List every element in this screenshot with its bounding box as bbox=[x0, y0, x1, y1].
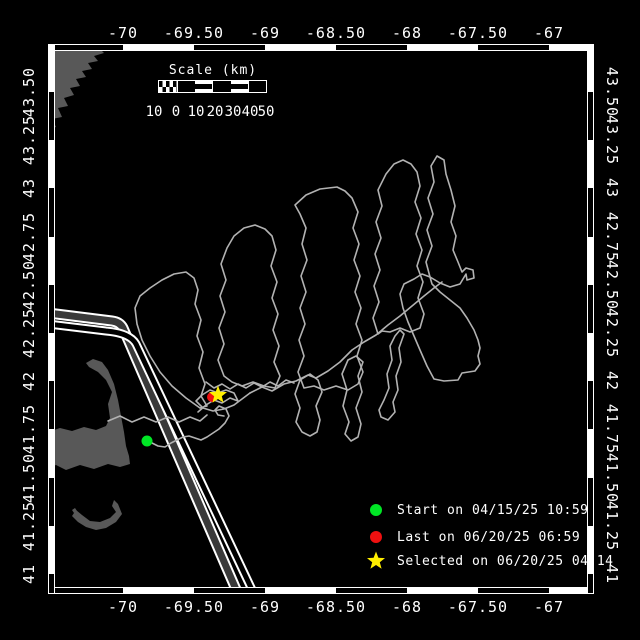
zebra-segment bbox=[49, 478, 54, 526]
glider-track bbox=[250, 282, 442, 393]
last-marker-icon bbox=[370, 531, 382, 543]
glider-track bbox=[295, 374, 322, 436]
zebra-segment bbox=[49, 381, 54, 429]
glider-track bbox=[426, 156, 474, 287]
scale-bar-segment bbox=[231, 81, 248, 92]
zebra-segment bbox=[478, 588, 549, 593]
scale-bar-checker-segment bbox=[159, 81, 177, 92]
lat-tick-label: 41 bbox=[20, 539, 38, 609]
zebra-segment bbox=[49, 188, 54, 237]
frame-border-bottom bbox=[48, 587, 594, 594]
glider-track bbox=[206, 380, 294, 389]
zebra-segment bbox=[588, 574, 593, 593]
zebra-segment bbox=[588, 92, 593, 140]
start-marker-icon bbox=[370, 504, 382, 516]
glider-track-map-page: -70-69.50-69-68.50-68-67.50-67 -70-69.50… bbox=[0, 0, 640, 640]
lon-tick-label: -67 bbox=[504, 598, 594, 616]
scale-tick-label: 10 bbox=[188, 104, 205, 120]
lon-tick-label: -67 bbox=[504, 24, 594, 42]
frame-border-top bbox=[48, 44, 594, 51]
scale-tick-label: 40 bbox=[242, 104, 259, 120]
zebra-segment bbox=[588, 478, 593, 526]
scale-tick-label: 50 bbox=[258, 104, 275, 120]
landmass bbox=[72, 500, 122, 530]
glider-track bbox=[218, 225, 280, 388]
zebra-segment bbox=[52, 588, 123, 593]
start-marker bbox=[142, 436, 153, 447]
zebra-segment bbox=[49, 574, 54, 593]
glider-track bbox=[400, 274, 480, 381]
legend-last-label: Last on 06/20/25 06:59 bbox=[397, 530, 580, 545]
zebra-segment bbox=[588, 285, 593, 333]
zebra-segment bbox=[336, 45, 407, 50]
zebra-segment bbox=[588, 188, 593, 237]
zebra-segment bbox=[49, 92, 54, 140]
zebra-segment bbox=[52, 45, 123, 50]
legend-item-start: Start on 04/15/25 10:59 bbox=[363, 499, 589, 521]
scale-tick-label: 10 bbox=[146, 104, 163, 120]
scale-bar-segment bbox=[177, 81, 195, 92]
glider-track bbox=[373, 160, 424, 334]
legend-item-selected: Selected on 06/20/25 04:14 bbox=[363, 550, 614, 572]
scale-tick-label: 30 bbox=[225, 104, 242, 120]
zebra-segment bbox=[49, 285, 54, 333]
glider-track bbox=[295, 187, 363, 390]
scale-tick-label: 0 bbox=[172, 104, 180, 120]
scale-bar bbox=[158, 80, 267, 93]
legend-selected-label: Selected on 06/20/25 04:14 bbox=[397, 554, 614, 569]
zebra-segment bbox=[194, 45, 265, 50]
legend-item-last: Last on 06/20/25 06:59 bbox=[363, 526, 580, 548]
scale-tick-label: 20 bbox=[207, 104, 224, 120]
frame-border-left bbox=[48, 44, 55, 594]
selected-star-icon bbox=[364, 550, 388, 572]
glider-track bbox=[379, 330, 404, 420]
landmass bbox=[48, 359, 130, 470]
scale-bar-segment bbox=[195, 81, 212, 92]
scale-bar-title: Scale (km) bbox=[158, 63, 268, 78]
scale-bar-segment bbox=[212, 81, 230, 92]
zebra-segment bbox=[336, 588, 407, 593]
landmass bbox=[48, 44, 106, 129]
legend-start-label: Start on 04/15/25 10:59 bbox=[397, 503, 589, 518]
zebra-segment bbox=[478, 45, 549, 50]
glider-track bbox=[342, 356, 363, 441]
scale-bar-segment bbox=[248, 81, 266, 92]
zebra-segment bbox=[194, 588, 265, 593]
zebra-segment bbox=[588, 381, 593, 429]
